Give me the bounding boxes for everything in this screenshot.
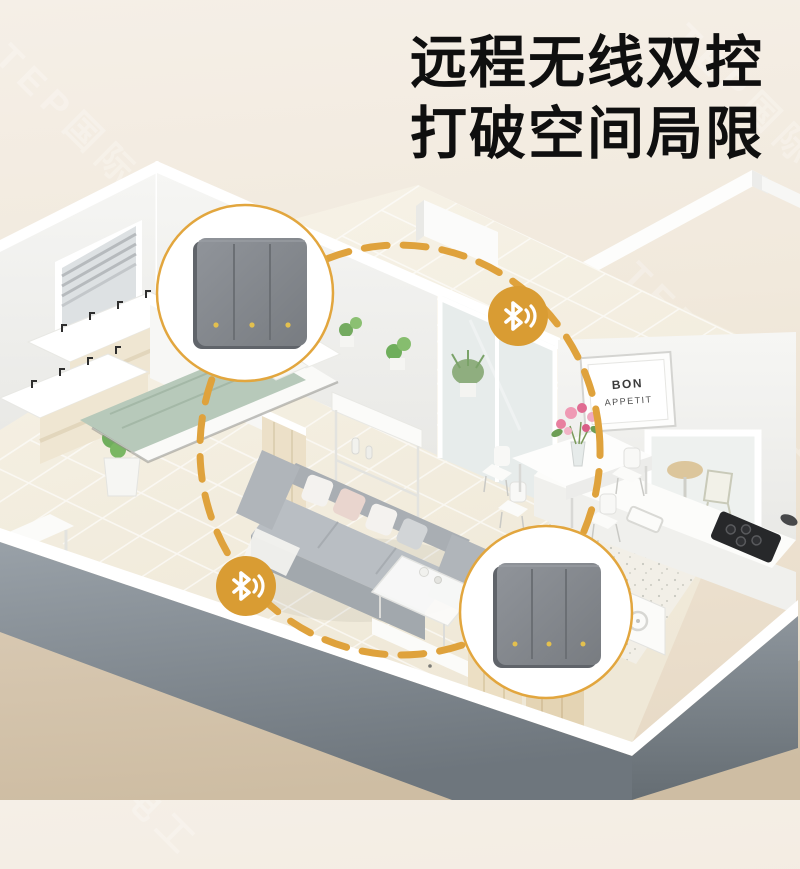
led-indicator [547, 642, 552, 647]
led-indicator [285, 322, 290, 327]
switch-panel [493, 563, 601, 668]
callout-bottom-switch [460, 526, 632, 698]
switch-panel [193, 238, 307, 349]
headline-line2: 打破空间局限 [410, 99, 764, 170]
led-indicator [581, 642, 586, 647]
headline: 远程无线双控 打破空间局限 [410, 28, 764, 169]
led-indicator [213, 322, 218, 327]
promo-image: TEP国际电工 TEP国际电工 TEP国际电工 TEP国际电工 [0, 0, 800, 800]
bluetooth-badge-top [488, 286, 548, 346]
led-indicator [249, 322, 254, 327]
callout-top-switch [157, 205, 333, 381]
bluetooth-badge-bottom [216, 556, 276, 616]
svg-text:BON: BON [611, 376, 643, 392]
upper-terrace-wall [583, 170, 800, 270]
headline-line1: 远程无线双控 [410, 28, 764, 99]
led-indicator [513, 642, 518, 647]
